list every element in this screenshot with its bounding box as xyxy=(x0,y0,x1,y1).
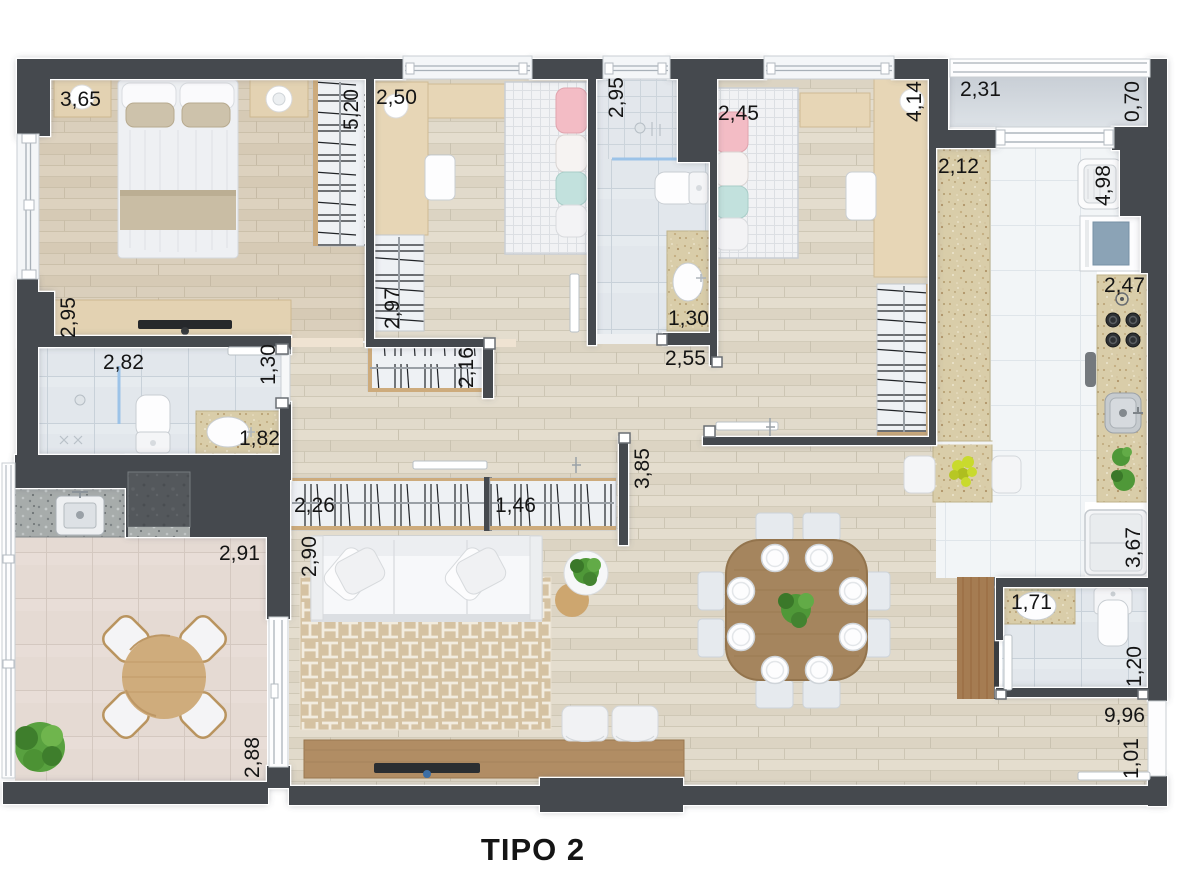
svg-text:2,91: 2,91 xyxy=(219,542,260,565)
svg-text:2,90: 2,90 xyxy=(298,536,321,577)
svg-text:2,45: 2,45 xyxy=(718,102,759,125)
svg-text:2,97: 2,97 xyxy=(381,288,404,329)
svg-text:1,71: 1,71 xyxy=(1011,591,1052,614)
svg-text:1,30: 1,30 xyxy=(668,307,709,330)
svg-text:3,85: 3,85 xyxy=(631,448,654,489)
svg-text:2,95: 2,95 xyxy=(605,77,628,118)
svg-text:TIPO 2: TIPO 2 xyxy=(481,832,585,867)
svg-text:2,95: 2,95 xyxy=(57,297,80,338)
svg-text:2,16: 2,16 xyxy=(455,347,478,388)
svg-text:2,82: 2,82 xyxy=(103,351,144,374)
svg-text:1,30: 1,30 xyxy=(257,344,280,385)
svg-text:2,31: 2,31 xyxy=(960,78,1001,101)
svg-text:2,26: 2,26 xyxy=(294,494,335,517)
svg-text:3,65: 3,65 xyxy=(60,88,101,111)
svg-text:1,46: 1,46 xyxy=(495,494,536,517)
svg-text:4,14: 4,14 xyxy=(903,81,926,122)
svg-text:4,98: 4,98 xyxy=(1092,165,1115,206)
svg-text:1,82: 1,82 xyxy=(239,427,280,450)
svg-text:5,20: 5,20 xyxy=(340,89,363,130)
svg-text:3,67: 3,67 xyxy=(1122,527,1145,568)
svg-text:1,20: 1,20 xyxy=(1123,646,1146,687)
svg-text:2,47: 2,47 xyxy=(1104,274,1145,297)
svg-text:0,70: 0,70 xyxy=(1121,81,1144,122)
svg-text:1,01: 1,01 xyxy=(1120,738,1143,779)
svg-text:2,55: 2,55 xyxy=(665,347,706,370)
svg-text:2,12: 2,12 xyxy=(938,155,979,178)
svg-text:2,88: 2,88 xyxy=(241,737,264,778)
svg-text:9,96: 9,96 xyxy=(1104,704,1145,727)
svg-text:2,50: 2,50 xyxy=(376,86,417,109)
